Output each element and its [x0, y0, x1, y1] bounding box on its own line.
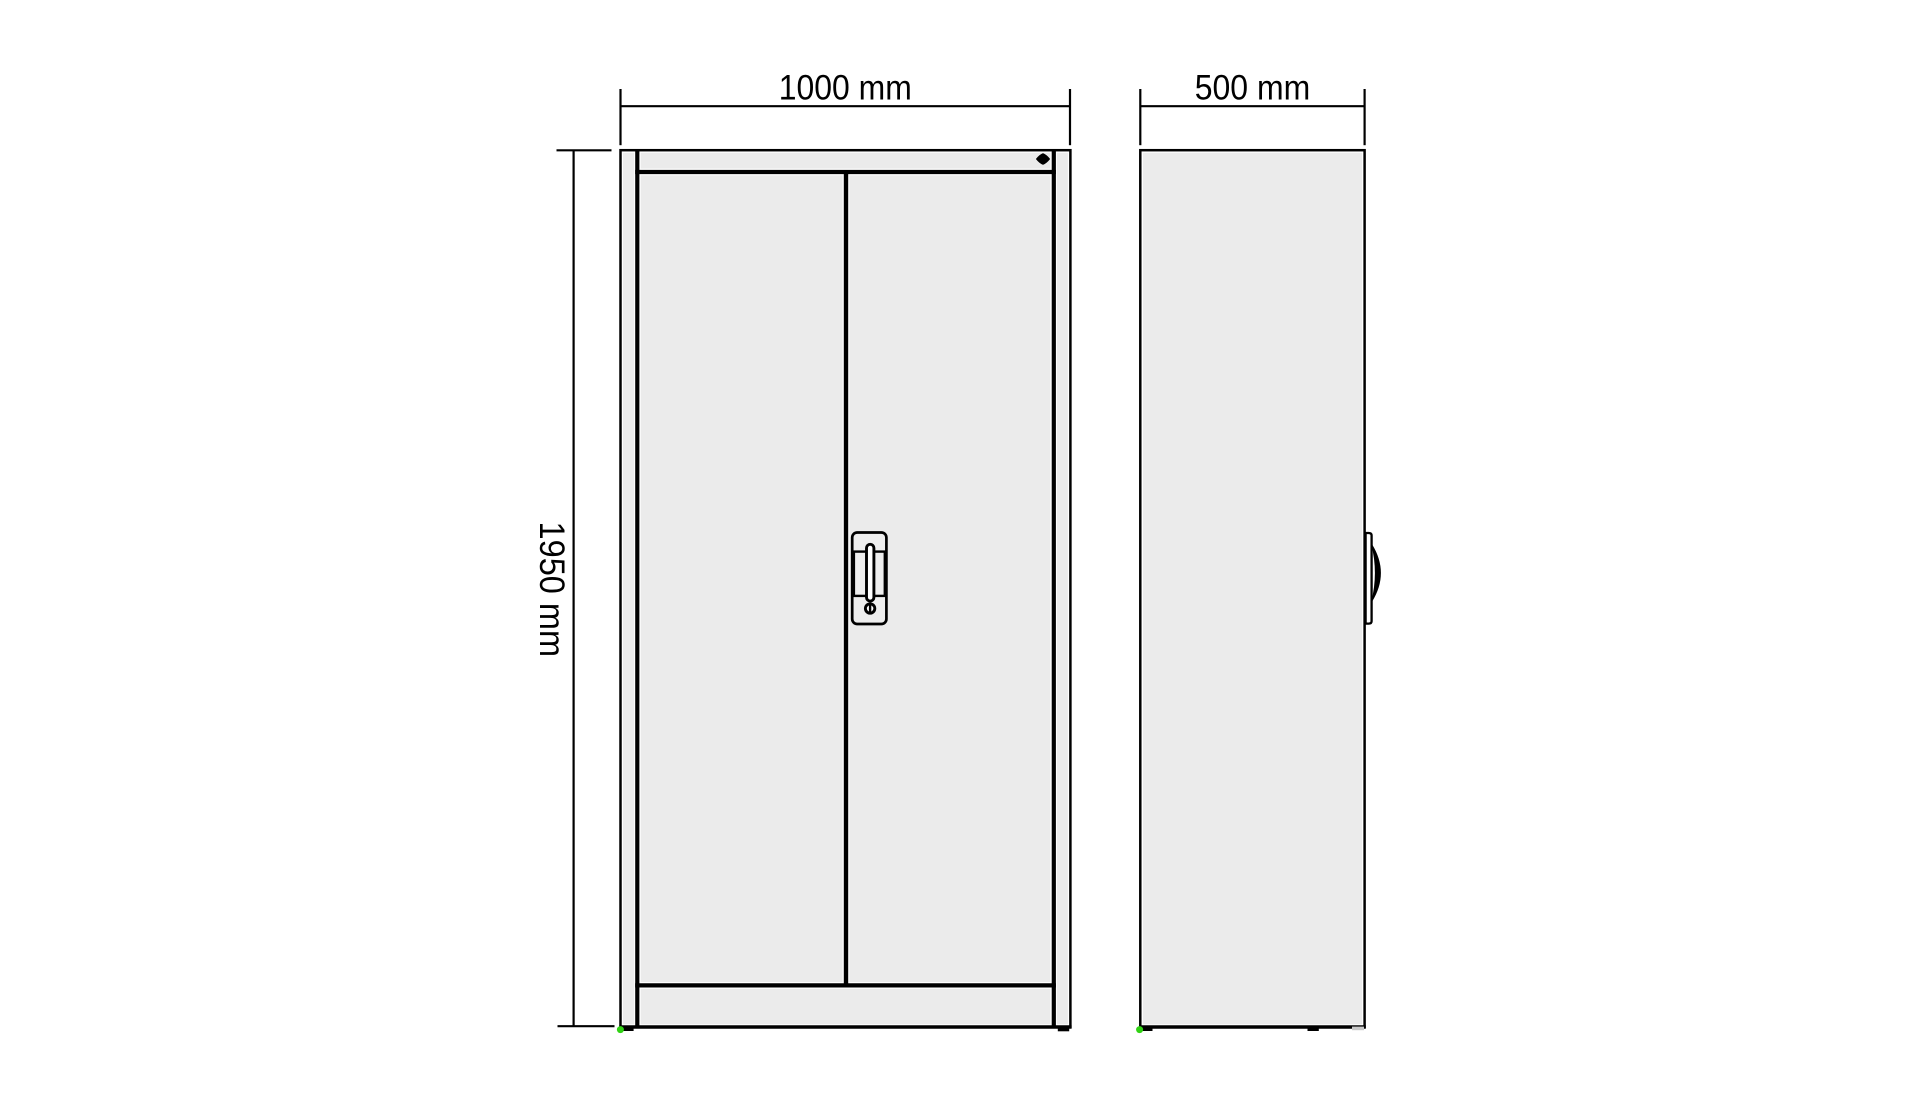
svg-text:1000 mm: 1000 mm: [779, 68, 912, 108]
svg-text:1950 mm: 1950 mm: [532, 522, 572, 658]
svg-text:500 mm: 500 mm: [1195, 68, 1311, 108]
